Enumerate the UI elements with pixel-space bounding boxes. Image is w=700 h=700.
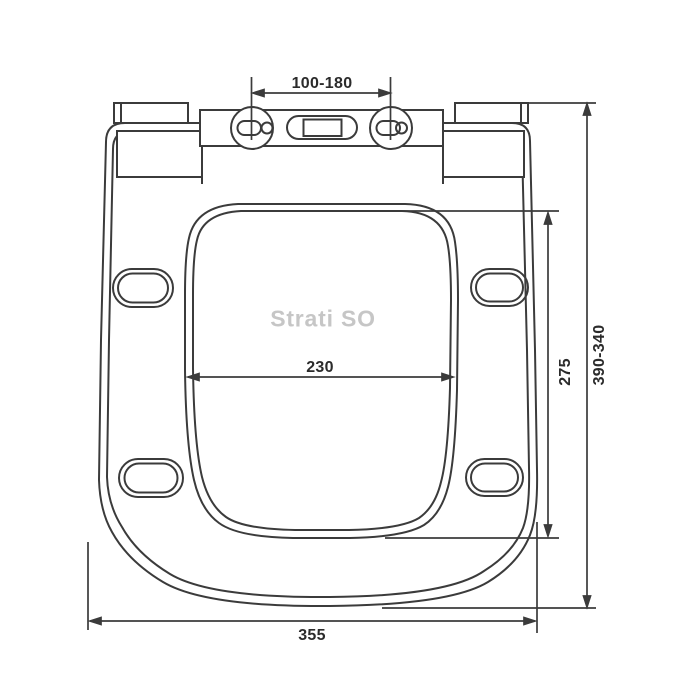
hinge-plate-right: [443, 131, 524, 177]
bumper-bottom-right-outer: [466, 459, 523, 496]
arrowhead: [188, 374, 199, 381]
arrowhead: [545, 213, 552, 224]
arrowhead: [253, 90, 264, 97]
arrowhead: [442, 374, 453, 381]
arrowhead: [524, 618, 535, 625]
bumper-top-left-inner: [118, 274, 168, 303]
dim-label-overall-width: 355: [298, 627, 326, 645]
dim-overall-length-line: [382, 103, 596, 608]
technical-drawing-toilet-seat: 100-180 230 275 390-340 355 Strati SO: [0, 0, 700, 700]
dim-label-hinge-spacing: 100-180: [292, 75, 353, 93]
hinge-tab-left: [114, 103, 188, 123]
arrowhead: [584, 596, 591, 607]
hinge-tab-right: [455, 103, 528, 123]
arrowhead: [545, 525, 552, 536]
bumper-bottom-left-outer: [119, 459, 183, 497]
arrowhead: [584, 104, 591, 115]
arrowhead: [379, 90, 390, 97]
product-name: Strati SO: [270, 306, 376, 333]
bumper-top-left-outer: [113, 269, 173, 307]
bumper-top-right-outer: [471, 269, 528, 306]
bumper-top-right-inner: [476, 274, 523, 302]
dim-label-inner-length: 275: [557, 358, 575, 386]
hinge-plate-left: [117, 131, 202, 177]
seat-bumpers: [113, 269, 528, 497]
dim-label-inner-width: 230: [306, 359, 334, 377]
bumper-bottom-left-inner: [125, 464, 178, 493]
arrowhead: [90, 618, 101, 625]
dim-label-overall-length: 390-340: [591, 325, 609, 386]
bumper-bottom-right-inner: [471, 464, 518, 492]
